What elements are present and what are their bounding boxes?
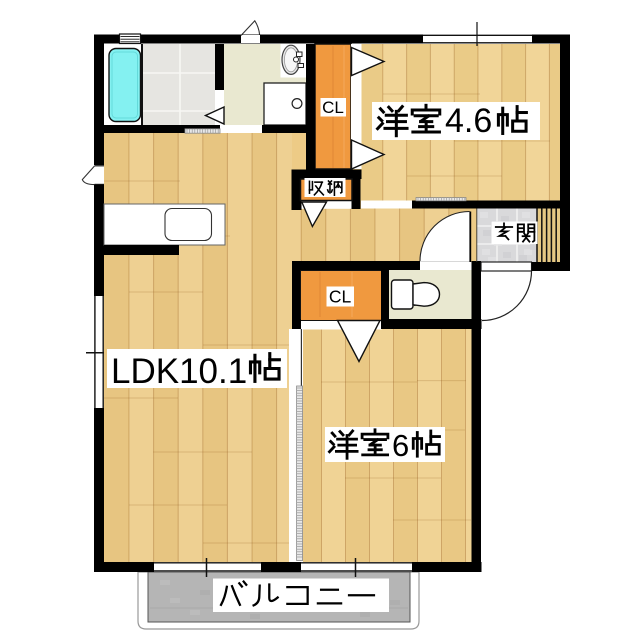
svg-text:4.6: 4.6 — [445, 102, 492, 140]
svg-text:CL: CL — [329, 287, 352, 307]
svg-text:CL: CL — [322, 98, 344, 117]
svg-text:6: 6 — [392, 428, 409, 463]
svg-text:LDK10.1: LDK10.1 — [111, 352, 247, 391]
